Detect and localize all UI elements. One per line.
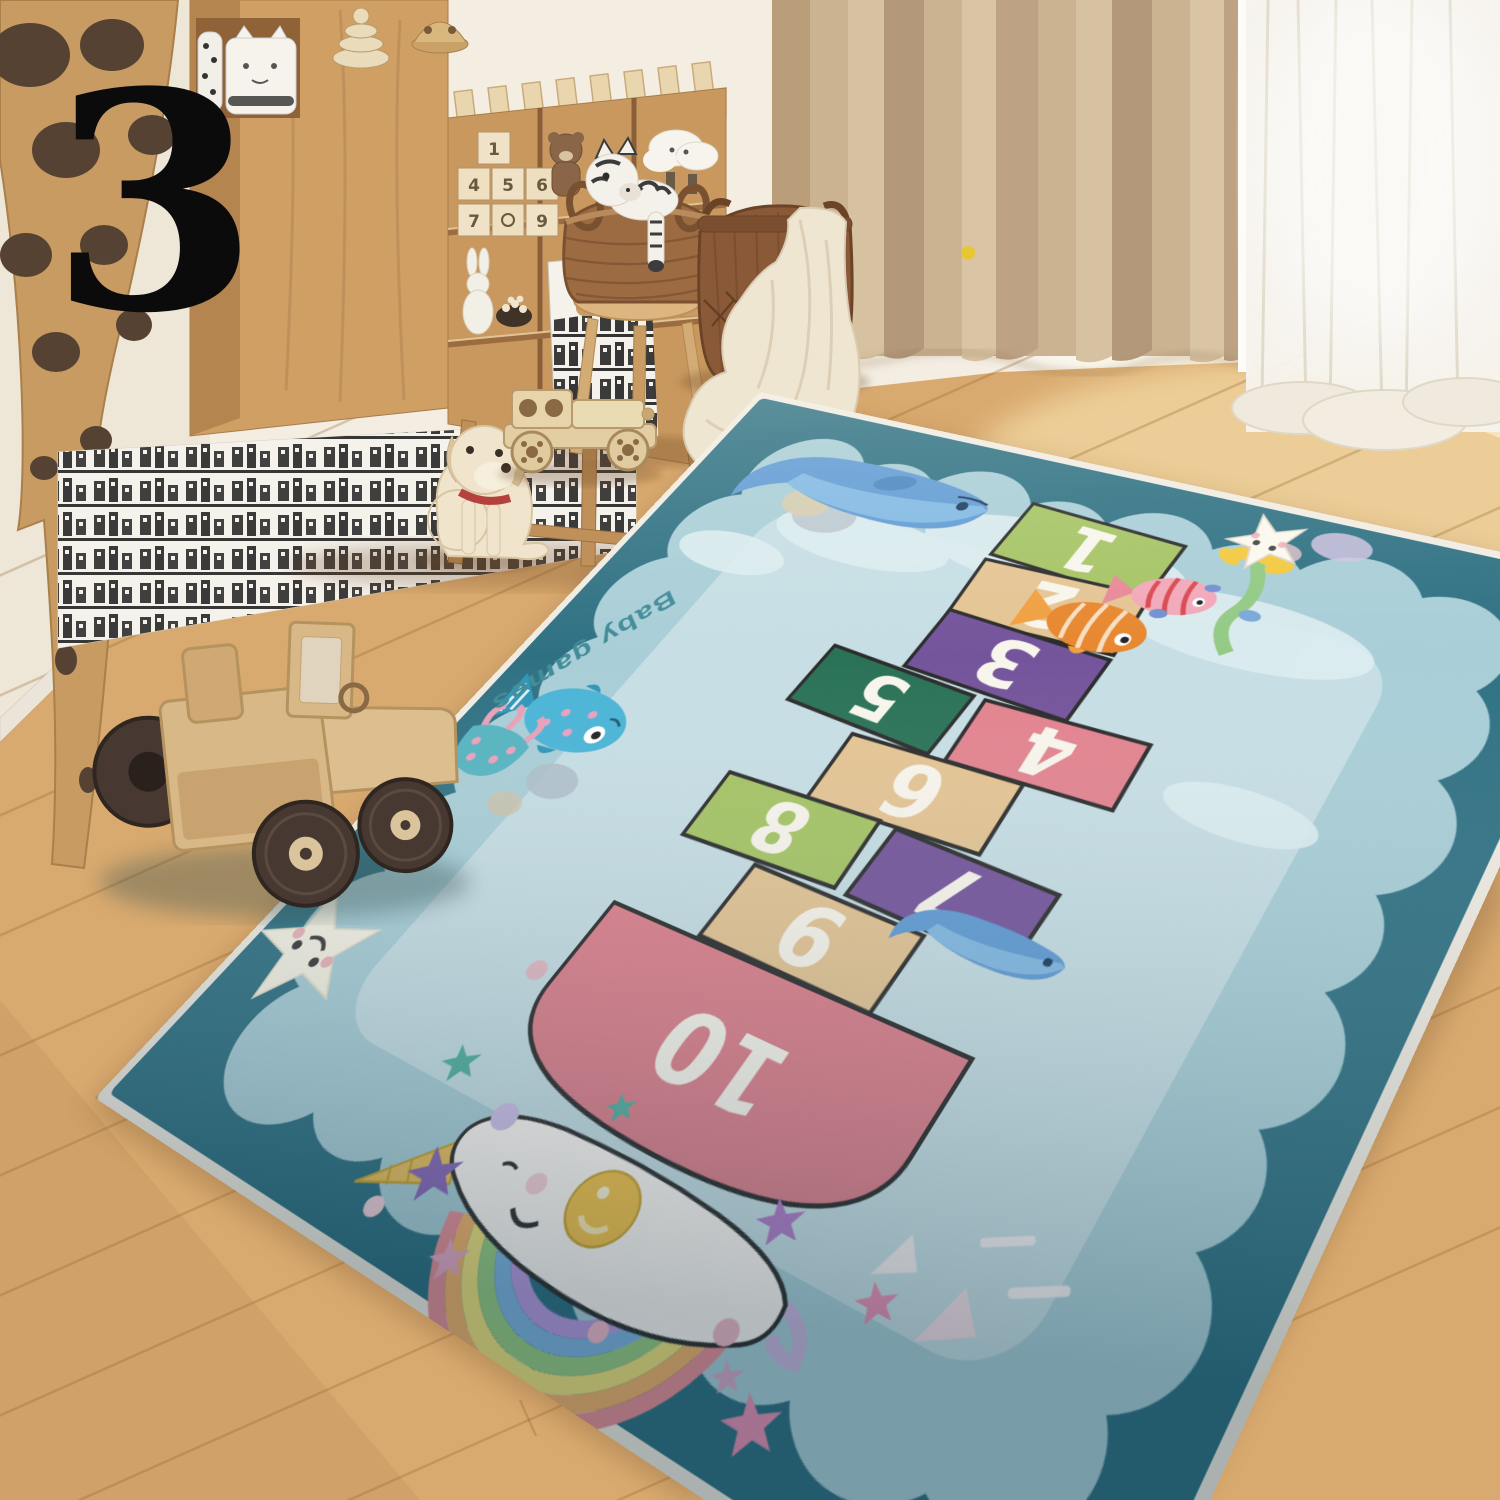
overlay: 3 xyxy=(0,0,1500,1500)
variant-label: 3 xyxy=(50,26,259,379)
jeep-seat-back xyxy=(182,644,243,723)
photo-canvas: 1 4 5 6 7 9 xyxy=(0,0,1500,1500)
wooden-jeep xyxy=(81,606,473,927)
